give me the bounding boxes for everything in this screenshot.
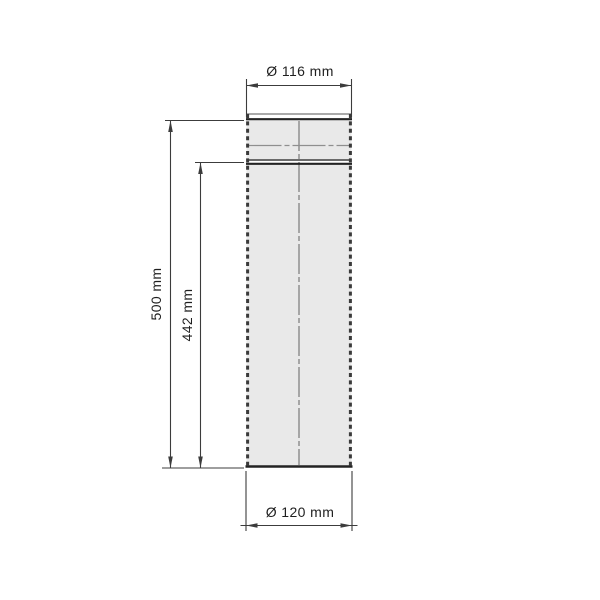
dim-label-bottom-diameter: Ø 120 mm [266,504,335,520]
dim120-arrow-left [246,523,258,528]
dim442-arrow-bottom [198,457,203,469]
dim116-arrow-left [247,83,259,88]
dim500-arrow-top [168,121,173,133]
dim500-arrow-bottom [168,457,173,469]
dim-label-top-diameter: Ø 116 mm [266,63,334,79]
dim116-arrow-right [340,83,352,88]
dim120-arrow-right [341,523,353,528]
dim-label-overall-length: 500 mm [148,268,164,321]
dim-label-inner-length: 442 mm [179,289,195,342]
dim442-arrow-top [198,163,203,175]
technical-drawing-canvas: Ø 116 mm 500 mm 442 mm Ø 120 mm [0,0,600,600]
